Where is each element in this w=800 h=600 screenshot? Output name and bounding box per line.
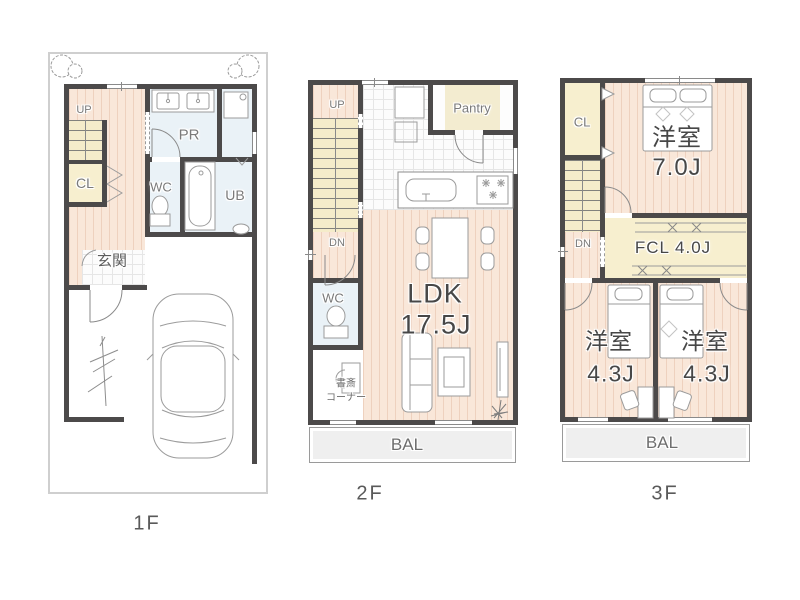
- wall: [64, 84, 69, 422]
- tree-icon: [228, 55, 259, 78]
- label-bedroom-b: 洋室: [681, 322, 729, 356]
- plan-2f: UP DN Pantry WC LDK 17.5J 書斎 コーナー BAL: [305, 76, 520, 468]
- tree-icon: [51, 55, 82, 78]
- label-cl-1f: CL: [76, 175, 94, 191]
- plan-1f: UP CL PR WC UB 玄関: [48, 52, 268, 494]
- wall: [145, 162, 150, 237]
- label-ldk-size: 17.5J: [400, 310, 471, 341]
- label-fcl: FCL 4.0J: [635, 238, 711, 258]
- wall: [653, 283, 658, 417]
- door-opening-dashed: [358, 114, 363, 128]
- door-opening: [565, 278, 592, 283]
- floor-name-3f: 3F: [651, 483, 678, 506]
- label-cl-3f: CL: [574, 115, 591, 130]
- stair-center-line: [582, 160, 583, 232]
- door-opening: [152, 157, 180, 162]
- window-mullion: [121, 82, 122, 91]
- window: [107, 84, 137, 89]
- label-bedroom-a: 洋室: [585, 322, 633, 356]
- laundry-floor: [222, 89, 252, 157]
- wall: [64, 160, 107, 164]
- wall: [565, 155, 605, 160]
- entrance-door-arc: [90, 290, 122, 322]
- window-mullion: [679, 76, 680, 85]
- stair-center-line: [85, 120, 86, 160]
- wall: [64, 202, 107, 207]
- wall: [64, 84, 257, 89]
- wall: [64, 417, 124, 422]
- label-study-1: 書斎: [336, 375, 356, 390]
- door-opening: [90, 285, 122, 290]
- branch-plant-icon: [88, 336, 118, 406]
- window-mullion: [305, 254, 316, 255]
- window-mullion: [374, 78, 375, 87]
- window: [308, 250, 313, 260]
- window: [560, 247, 565, 257]
- label-up-2f: UP: [329, 99, 344, 111]
- wall: [313, 345, 363, 350]
- window: [668, 417, 712, 422]
- window: [513, 148, 518, 174]
- wall: [308, 80, 518, 85]
- wall: [313, 278, 363, 283]
- label-ub: UB: [225, 187, 244, 203]
- label-wc-2f: WC: [322, 291, 344, 306]
- window: [645, 78, 715, 83]
- floor-name-1f: 1F: [133, 513, 160, 536]
- label-dn-2f: DN: [329, 237, 345, 249]
- label-pr: PR: [179, 127, 200, 144]
- label-dn-3f: DN: [575, 238, 591, 250]
- label-pantry: Pantry: [453, 101, 491, 116]
- door-opening-dashed: [358, 202, 363, 218]
- wall: [428, 130, 455, 135]
- wall: [180, 162, 185, 232]
- car-icon: [147, 294, 239, 458]
- wall: [632, 213, 752, 218]
- wall: [145, 232, 257, 237]
- label-genkan: 玄関: [97, 250, 127, 271]
- powder-room-floor: [150, 89, 217, 157]
- wall: [217, 89, 222, 157]
- window: [252, 132, 257, 154]
- label-bal-2f: BAL: [391, 435, 423, 455]
- label-bedroom-b-size: 4.3J: [683, 361, 730, 388]
- floor-name-2f: 2F: [356, 483, 383, 506]
- door-opening-dashed: [145, 112, 150, 154]
- label-bedroom-main-size: 7.0J: [652, 154, 701, 182]
- label-study-2: コーナー: [326, 389, 366, 404]
- label-bedroom-a-size: 4.3J: [587, 361, 634, 388]
- label-bal-3f: BAL: [646, 433, 678, 453]
- wall: [483, 130, 518, 135]
- window: [330, 420, 356, 425]
- stair-center-line: [335, 118, 336, 232]
- wall: [428, 85, 433, 135]
- window-mullion: [558, 251, 568, 252]
- window: [578, 417, 608, 422]
- floorplan-canvas: UP CL PR WC UB 玄関: [0, 0, 800, 600]
- window: [362, 80, 388, 85]
- door-opening-dashed: [600, 237, 605, 267]
- label-up-1f: UP: [76, 104, 91, 116]
- window: [435, 420, 472, 425]
- wall: [747, 78, 752, 422]
- label-wc-1f: WC: [150, 180, 172, 195]
- label-bedroom-main: 洋室: [652, 118, 702, 153]
- door-opening: [720, 278, 747, 283]
- plan-3f: CL DN 洋室 7.0J FCL 4.0J 洋室 4.3J 洋室 4.3J B…: [558, 76, 754, 468]
- label-ldk: LDK: [407, 279, 463, 310]
